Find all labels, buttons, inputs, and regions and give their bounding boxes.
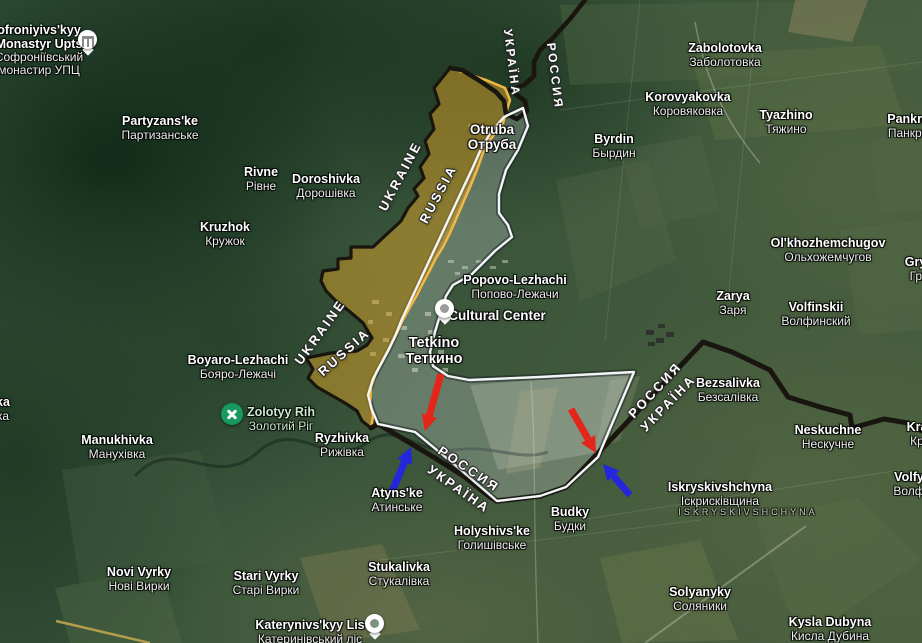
place-label-line: Отруба: [468, 138, 517, 153]
place-label-line: Соляники: [669, 600, 731, 613]
place-label-volfinskii[interactable]: VolfinskiiВолфинский: [781, 301, 850, 327]
place-label-line: Holyshivs'ke: [454, 525, 530, 539]
place-label-katerynivs-kyy-lis[interactable]: Katerynivs'kyy LisКатеринівський ліс: [255, 619, 364, 643]
place-label-line: Rivne: [244, 166, 278, 180]
place-label-line: Гря: [905, 270, 922, 283]
place-label-manukhivka[interactable]: ManukhivkaМанухівка: [81, 434, 153, 460]
place-label-line: Бырдин: [592, 147, 635, 160]
place-label-line: Дорошівка: [292, 187, 360, 200]
place-label-stukalivka[interactable]: StukalivkaСтукалівка: [368, 561, 430, 587]
place-label-zabolotovka[interactable]: ZabolotovkaЗаболотовка: [688, 42, 762, 68]
pin-circle: [78, 30, 97, 49]
place-label-ka[interactable]: kaка: [0, 396, 10, 422]
place-label-line: Панкрато: [887, 127, 922, 140]
place-label-kysla-dubyna[interactable]: Kysla DubynaКисла Дубина: [789, 616, 872, 642]
place-label-line: Solyanyky: [669, 586, 731, 600]
place-label-line: Софроніївський: [0, 51, 83, 64]
place-label-line: монастир УПЦ: [0, 64, 83, 77]
place-label-line: Tyazhino: [759, 109, 812, 123]
place-label-line: Byrdin: [592, 133, 635, 147]
place-label-line: Манухівка: [81, 448, 153, 461]
place-label-line: Zarya: [716, 290, 749, 304]
place-label-line: Партизанське: [121, 129, 198, 142]
place-label-stari-vyrky[interactable]: Stari VyrkyСтарі Вирки: [233, 570, 300, 596]
place-label-line: ofroniyivs'kyy: [0, 24, 83, 38]
place-label-line: Zolotyy Rih: [247, 406, 315, 420]
place-label-line: Katerynivs'kyy Lis: [255, 619, 364, 633]
place-label-ryzhivka[interactable]: RyzhivkaРижівка: [315, 432, 369, 458]
place-label-line: Zabolotovka: [688, 42, 762, 56]
place-label-line: Budky: [551, 506, 589, 520]
place-label-line: Novi Vyrky: [107, 566, 171, 580]
place-label-line: Волф: [893, 485, 922, 498]
place-label-kruzhok[interactable]: KruzhokКружок: [200, 221, 250, 247]
place-label-otruba[interactable]: OtrubaОтруба: [468, 123, 517, 152]
place-label-atyns-ke[interactable]: Atyns'keАтинське: [371, 487, 423, 513]
place-label-partyzans-ke[interactable]: Partyzans'keПартизанське: [121, 115, 198, 141]
pin-circle: [435, 299, 454, 318]
building-glyph: [82, 36, 94, 47]
place-label-grya[interactable]: GryaГря: [905, 256, 922, 282]
pin-circle: [221, 403, 243, 425]
place-label-line: Кр: [907, 435, 922, 448]
pin-dot: [370, 619, 379, 628]
place-label-korovyakovka[interactable]: KorovyakovkaКоровяковка: [645, 91, 730, 117]
place-label-line: Тяжино: [759, 123, 812, 136]
place-label-byrdin[interactable]: ByrdinБырдин: [592, 133, 635, 159]
place-label-line: Kra: [907, 421, 922, 435]
place-label-pankrato[interactable]: PankratoПанкрато: [887, 113, 922, 139]
blue-counter-arrow-east: [603, 464, 630, 495]
place-label-line: Volfinskii: [781, 301, 850, 315]
place-label-line: Monastyr Upts: [0, 38, 83, 52]
place-label-line: Stukalivka: [368, 561, 430, 575]
place-label-line: ка: [0, 410, 10, 423]
place-label-solyanyky[interactable]: SolyanykyСоляники: [669, 586, 731, 612]
place-label-volfy[interactable]: VolfyВолф: [893, 471, 922, 497]
place-label-ofroniyivs-kyy[interactable]: ofroniyivs'kyyMonastyr UptsСофроніївськи…: [0, 24, 83, 77]
place-label-line: Коровяковка: [645, 105, 730, 118]
map-canvas[interactable]: ofroniyivs'kyyMonastyr UptsСофроніївськи…: [0, 0, 922, 643]
place-label-cultural-center[interactable]: Cultural Center: [448, 309, 546, 324]
place-label-line: Stari Vyrky: [233, 570, 300, 584]
place-label-line: Grya: [905, 256, 922, 270]
place-label-line: Теткино: [406, 352, 463, 368]
place-label-line: Стукалівка: [368, 575, 430, 588]
place-label-line: Ol'khozhemchugov: [771, 237, 886, 251]
place-label-budky[interactable]: BudkyБудки: [551, 506, 589, 532]
place-label-ol-khozhemchugov[interactable]: Ol'khozhemchugovОльхожемчугов: [771, 237, 886, 263]
place-label-line: Atyns'ke: [371, 487, 423, 501]
place-label-line: Popovo-Lezhachi: [463, 274, 566, 288]
place-label-line: Cultural Center: [448, 309, 546, 324]
place-label-line: Голишівське: [454, 539, 530, 552]
place-label-line: Старі Вирки: [233, 584, 300, 597]
place-label-line: Попово-Лежачи: [463, 288, 566, 301]
place-label-line: Рівне: [244, 180, 278, 193]
place-label-line: Кружок: [200, 235, 250, 248]
place-label-line: Кисла Дубина: [789, 630, 872, 643]
place-label-line: Kysla Dubyna: [789, 616, 872, 630]
place-label-boyaro-lezhachi[interactable]: Boyaro-LezhachiБояро-Лежачі: [188, 354, 289, 380]
place-label-popovo-lezhachi[interactable]: Popovo-LezhachiПопово-Лежачи: [463, 274, 566, 300]
place-label-line: Otruba: [468, 123, 517, 138]
place-label-line: Рижівка: [315, 446, 369, 459]
place-label-tetkino[interactable]: TetkinoТеткино: [406, 336, 463, 367]
place-label-line: Korovyakovka: [645, 91, 730, 105]
place-label-kra[interactable]: KraКр: [907, 421, 922, 447]
place-label-line: Boyaro-Lezhachi: [188, 354, 289, 368]
place-label-iskryskivshchyna[interactable]: ISKRYSKIVSHCHYNA: [678, 508, 817, 518]
place-label-line: Ольхожемчугов: [771, 251, 886, 264]
place-label-line: ISKRYSKIVSHCHYNA: [678, 508, 817, 518]
place-label-line: Neskuchne: [795, 424, 862, 438]
place-label-line: Doroshivka: [292, 173, 360, 187]
place-label-line: Заболотовка: [688, 56, 762, 69]
place-label-tyazhino[interactable]: TyazhinoТяжино: [759, 109, 812, 135]
place-label-line: Tetkino: [406, 336, 463, 352]
place-label-line: Будки: [551, 520, 589, 533]
place-label-line: ka: [0, 396, 10, 410]
pin-circle: [365, 614, 384, 633]
place-label-line: Bezsalivka: [696, 377, 760, 391]
place-label-line: Iskryskivshchyna: [668, 481, 772, 495]
place-label-line: Катеринівський ліс: [255, 633, 364, 643]
place-label-zolotyy-rih[interactable]: Zolotyy RihЗолотий Ріг: [247, 406, 315, 432]
place-label-neskuchne[interactable]: NeskuchneНескучне: [795, 424, 862, 450]
place-label-line: Атинське: [371, 501, 423, 514]
place-label-line: Нові Вирки: [107, 580, 171, 593]
place-label-holyshivs-ke[interactable]: Holyshivs'keГолишівське: [454, 525, 530, 551]
place-label-line: Заря: [716, 304, 749, 317]
place-label-novi-vyrky[interactable]: Novi VyrkyНові Вирки: [107, 566, 171, 592]
place-label-line: Kruzhok: [200, 221, 250, 235]
place-label-line: Volfy: [893, 471, 922, 485]
place-label-line: Pankrato: [887, 113, 922, 127]
place-label-line: Бояро-Лежачі: [188, 368, 289, 381]
place-label-line: Іскрисківщина: [668, 495, 772, 508]
place-label-line: Manukhivka: [81, 434, 153, 448]
place-label-line: Partyzans'ke: [121, 115, 198, 129]
place-label-zarya[interactable]: ZaryaЗаря: [716, 290, 749, 316]
pin-dot: [440, 304, 449, 313]
place-label-rivne[interactable]: RivneРівне: [244, 166, 278, 192]
place-label-line: Безсалівка: [696, 391, 760, 404]
place-label-iskryskivshchyna[interactable]: IskryskivshchynaІскрисківщина: [668, 481, 772, 507]
place-label-line: Ryzhivka: [315, 432, 369, 446]
place-label-bezsalivka[interactable]: BezsalivkaБезсалівка: [696, 377, 760, 403]
place-label-line: Золотий Ріг: [247, 420, 315, 433]
place-label-doroshivka[interactable]: DoroshivkaДорошівка: [292, 173, 360, 199]
place-label-line: Нескучне: [795, 438, 862, 451]
place-label-line: Волфинский: [781, 315, 850, 328]
